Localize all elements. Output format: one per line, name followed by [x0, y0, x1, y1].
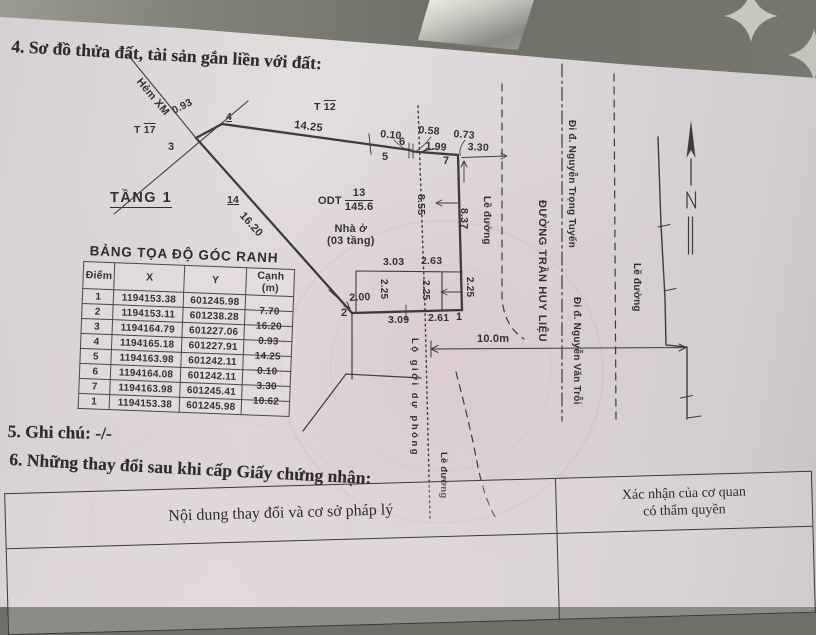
dim-3.09: 3.09	[388, 314, 409, 326]
photographed-land-certificate-page: { "document": { "section4_title": "4. Sơ…	[0, 0, 816, 607]
dim-10.0m: 10.0m	[477, 333, 509, 345]
dim-3.30: 3.30	[467, 141, 489, 154]
col-header-y: Y	[184, 265, 247, 294]
adjacent-parcel-14: 14	[227, 194, 239, 206]
dim-2.61: 2.61	[428, 312, 449, 324]
north-arrow-head	[687, 120, 696, 158]
star-cutouts	[710, 0, 816, 96]
roadside-label-1: Lề đường	[481, 196, 492, 256]
coord-point: 1	[78, 393, 110, 409]
dim-2.63: 2.63	[421, 255, 442, 267]
direction-nguyen-van-troi: Đi đ. Nguyễn Văn Trỗi	[571, 297, 582, 422]
coord-point: 2	[82, 303, 114, 319]
land-use-code: ODT	[318, 195, 342, 207]
north-arrow-letter	[687, 192, 696, 208]
dim-8.55: 8.55	[415, 194, 427, 234]
parcel-area-fraction: 13 145.6	[345, 188, 374, 213]
house-floors: (03 tầng)	[327, 235, 375, 247]
point-2: 2	[341, 307, 347, 319]
col-header-x: X	[114, 263, 185, 293]
dim-10m-line	[431, 341, 686, 357]
col2-line1: Xác nhận của cơ quan	[622, 483, 746, 504]
dim-0.10: 0.10	[380, 128, 402, 142]
dim-0.73: 0.73	[453, 128, 475, 142]
parcel-num: 12	[324, 101, 336, 113]
coord-point: 4	[80, 333, 112, 349]
adjacent-parcel-t12: T 12	[314, 101, 336, 113]
parcel-number: 13	[353, 187, 366, 199]
coord-edge-length: 10.62	[242, 400, 291, 417]
dim-2.25-a: 2.25	[378, 279, 389, 313]
roadside-label-3: Lề đường	[631, 263, 642, 321]
changes-col-content: Nội dung thay đổi và cơ sở pháp lý	[5, 479, 560, 634]
house-type: Nhà ở	[327, 223, 375, 235]
coord-point: 3	[81, 318, 113, 334]
dim-8.37: 8.37	[458, 208, 470, 248]
street-edge-dashed	[614, 74, 616, 421]
changes-col-confirmation: Xác nhận của cơ quan có thẩm quyền	[556, 472, 815, 619]
t-prefix: T	[314, 101, 321, 113]
road-edge-line	[658, 137, 687, 419]
coord-point: 7	[79, 378, 111, 394]
dim-2.25-b: 2.25	[420, 280, 431, 314]
section5-note: 5. Ghi chú: -/-	[8, 421, 112, 444]
dim-3.03: 3.03	[383, 256, 404, 268]
floor-label: TẦNG 1	[110, 190, 172, 208]
dim-2.00: 2.00	[349, 291, 371, 304]
changes-col2-header: Xác nhận của cơ quan có thẩm quyền	[556, 472, 812, 534]
point-1: 1	[456, 311, 462, 323]
adjacent-parcel-4: 4	[226, 111, 232, 123]
col-header-canh: Cạnh (m)	[246, 268, 295, 297]
col-header-diem: Điểm	[83, 262, 115, 290]
coord-table-body: 11194153.38601245.9821194153.11601238.28…	[78, 288, 294, 416]
street-name-tran-huy-lieu: ĐƯỜNG TRẦN HUY LIỆU	[536, 200, 548, 350]
dim-0.58: 0.58	[418, 124, 440, 138]
coord-point: 6	[79, 363, 111, 379]
t-prefix: T	[134, 124, 141, 136]
coord-y: 601245.98	[180, 397, 243, 414]
point-5: 5	[382, 151, 388, 163]
star-cutout-icon	[724, 0, 778, 42]
star-cutout-icon	[788, 29, 816, 81]
point-7: 7	[443, 155, 449, 167]
neighbour-lines	[303, 374, 421, 431]
direction-nguyen-trong-tuyen: Đi đ. Nguyễn Trọng Tuyến	[566, 120, 577, 268]
dim-1.99: 1.99	[425, 140, 447, 154]
coordinate-table: Điểm X Y Cạnh (m) 11194153.38601245.9821…	[78, 261, 296, 417]
point-3: 3	[168, 141, 174, 153]
parcel-area: 145.6	[345, 200, 374, 214]
coord-point: 1	[82, 288, 114, 304]
street-edge-dashed	[502, 84, 524, 339]
house-label: Nhà ở (03 tầng)	[327, 223, 375, 247]
adjacent-parcel-t17: T 17	[134, 124, 156, 136]
col2-line2: có thẩm quyền	[643, 501, 726, 521]
land-use-label: ODT 13 145.6	[318, 188, 373, 213]
coord-x: 1194153.38	[110, 395, 181, 413]
changes-table: Nội dung thay đổi và cơ sở pháp lý Xác n…	[4, 471, 816, 635]
parcel-num: 17	[144, 124, 156, 136]
coord-point: 5	[80, 348, 112, 364]
coordinate-table-block: BẢNG TỌA ĐỘ GÓC RANH Điểm X Y Cạnh (m) 1…	[78, 243, 297, 417]
dim-2.25-c: 2.25	[464, 277, 475, 311]
